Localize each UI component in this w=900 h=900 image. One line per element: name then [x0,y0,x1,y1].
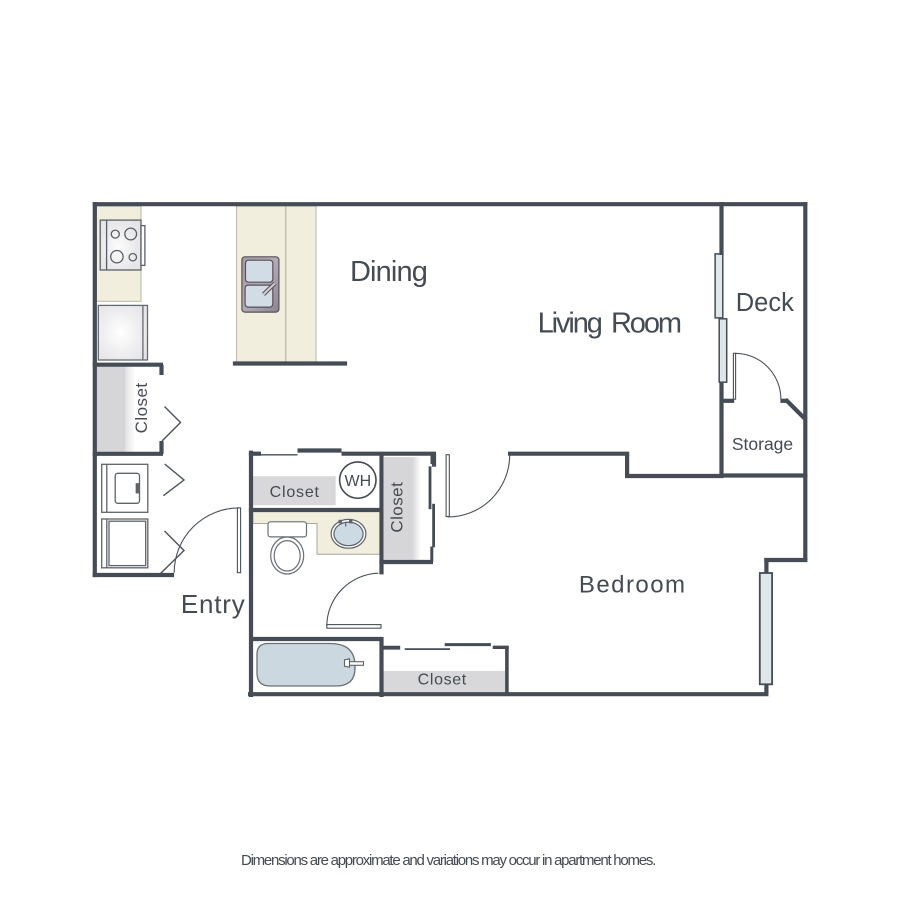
svg-text:Storage: Storage [732,434,793,454]
svg-text:Dining: Dining [350,256,427,288]
svg-text:Living Room: Living Room [538,308,681,340]
svg-text:Closet: Closet [270,484,320,501]
svg-text:Bedroom: Bedroom [579,572,687,599]
svg-text:Closet: Closet [132,382,151,433]
svg-text:WH: WH [344,473,371,490]
svg-text:Closet: Closet [418,671,467,688]
svg-text:Closet: Closet [388,482,407,533]
svg-text:Entry: Entry [181,589,246,619]
svg-text:Deck: Deck [736,289,794,317]
svg-text:Dimensions are approximate and: Dimensions are approximate and variation… [241,852,655,869]
